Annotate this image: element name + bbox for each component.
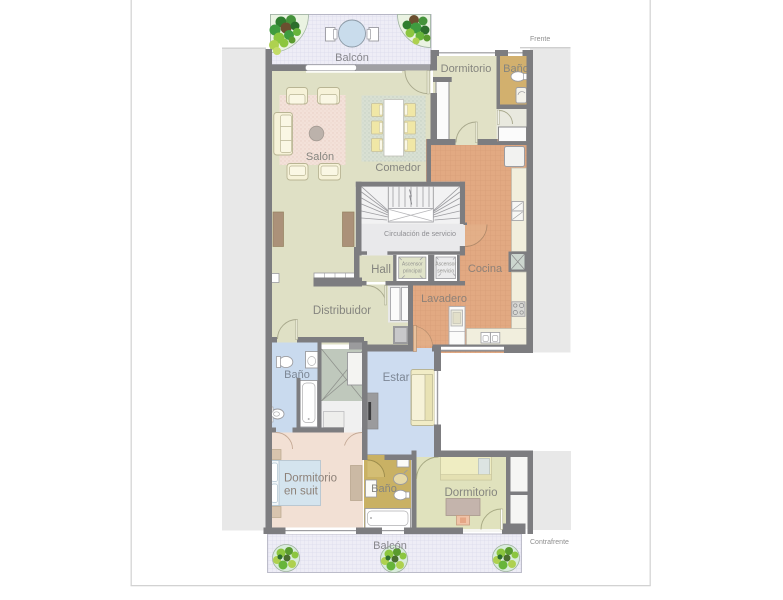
svg-text:Comedor: Comedor — [375, 162, 421, 174]
svg-text:Dormitorio: Dormitorio — [441, 63, 492, 75]
svg-text:Dormitorio: Dormitorio — [284, 473, 337, 485]
svg-text:Hall: Hall — [371, 264, 391, 276]
svg-text:Estar: Estar — [383, 372, 410, 384]
svg-text:Salón: Salón — [306, 151, 334, 163]
svg-text:Contrafrente: Contrafrente — [530, 539, 569, 546]
svg-text:Balcón: Balcón — [335, 52, 369, 64]
svg-text:Distribuidor: Distribuidor — [313, 305, 371, 317]
svg-text:Baño: Baño — [371, 483, 397, 495]
svg-text:Circulación de servicio: Circulación de servicio — [384, 229, 456, 238]
svg-text:Ascensor: Ascensor — [435, 262, 456, 268]
svg-text:Cocina: Cocina — [468, 263, 503, 275]
svg-text:Ascensor: Ascensor — [402, 262, 423, 268]
svg-text:Balcón: Balcón — [373, 540, 407, 552]
svg-text:Lavadero: Lavadero — [421, 293, 467, 305]
svg-text:en suit: en suit — [284, 486, 319, 498]
svg-text:principal: principal — [403, 269, 422, 275]
svg-text:Dormitorio: Dormitorio — [444, 487, 497, 499]
svg-text:servicio: servicio — [437, 269, 454, 275]
svg-text:Frente: Frente — [530, 36, 550, 43]
